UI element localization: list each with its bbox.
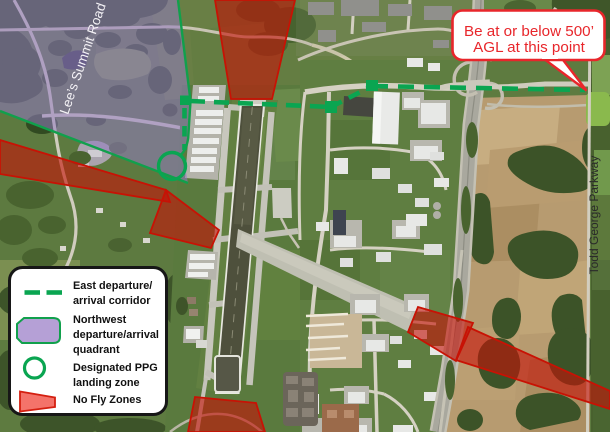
svg-text:arrival corridor: arrival corridor xyxy=(73,295,151,307)
svg-text:AGL at this point: AGL at this point xyxy=(473,39,585,56)
svg-text:East departure/: East departure/ xyxy=(73,280,152,292)
svg-text:departure/arrival: departure/arrival xyxy=(73,329,159,341)
svg-text:quadrant: quadrant xyxy=(73,344,120,356)
svg-text:Designated PPG: Designated PPG xyxy=(73,362,158,374)
svg-text:Be at or below 500’: Be at or below 500’ xyxy=(464,23,594,40)
svg-text:Todd George Parkway: Todd George Parkway xyxy=(587,156,601,275)
svg-text:Northwest: Northwest xyxy=(73,314,127,326)
svg-text:landing zone: landing zone xyxy=(73,377,140,389)
svg-text:No Fly Zones: No Fly Zones xyxy=(73,394,141,406)
